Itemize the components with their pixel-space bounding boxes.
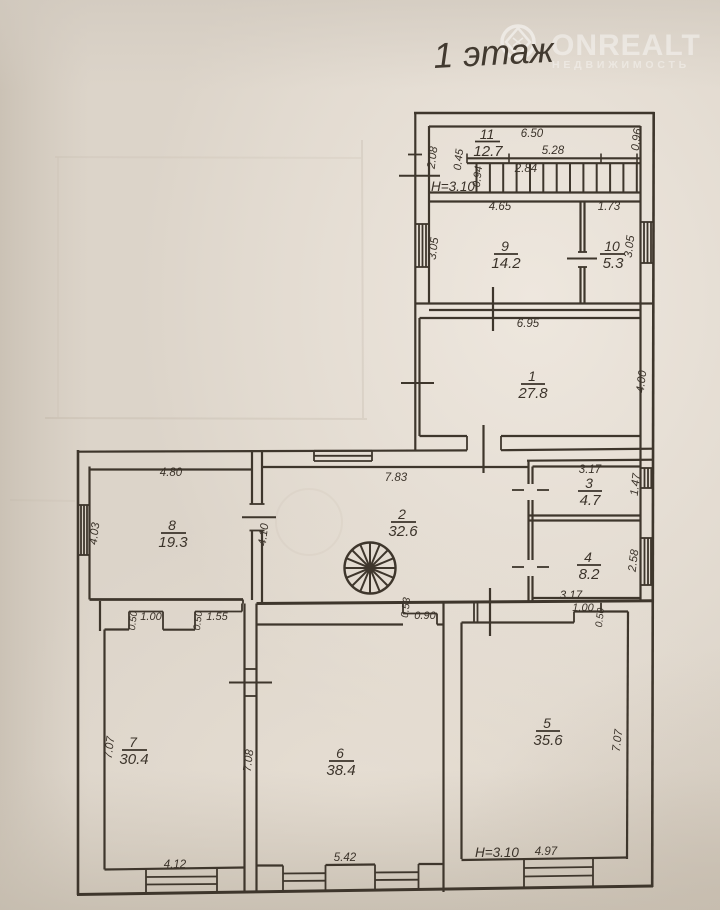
svg-text:2: 2 bbox=[397, 506, 406, 522]
svg-text:1.73: 1.73 bbox=[598, 201, 621, 213]
svg-text:6: 6 bbox=[336, 745, 344, 761]
svg-text:7: 7 bbox=[129, 734, 138, 750]
svg-text:27.8: 27.8 bbox=[517, 385, 548, 402]
svg-text:1.55: 1.55 bbox=[206, 611, 228, 623]
svg-text:4: 4 bbox=[584, 549, 592, 565]
svg-text:2.84: 2.84 bbox=[514, 163, 537, 175]
svg-text:5: 5 bbox=[543, 715, 551, 731]
svg-text:6.95: 6.95 bbox=[517, 318, 540, 330]
svg-text:1.00: 1.00 bbox=[140, 611, 162, 623]
svg-text:НЕДВИЖИМОСТЬ: НЕДВИЖИМОСТЬ bbox=[552, 59, 690, 71]
svg-text:12.7: 12.7 bbox=[473, 143, 503, 160]
svg-text:8.2: 8.2 bbox=[579, 566, 601, 583]
svg-text:3: 3 bbox=[585, 475, 593, 491]
svg-text:0.90: 0.90 bbox=[414, 610, 436, 622]
svg-text:0.53: 0.53 bbox=[399, 597, 413, 619]
svg-text:4.97: 4.97 bbox=[535, 846, 558, 858]
svg-text:5.42: 5.42 bbox=[334, 852, 357, 864]
svg-text:38.4: 38.4 bbox=[326, 762, 355, 779]
svg-text:ONREALT: ONREALT bbox=[551, 29, 701, 62]
svg-text:6.50: 6.50 bbox=[521, 128, 544, 140]
svg-text:14.2: 14.2 bbox=[491, 255, 521, 272]
svg-text:3.17: 3.17 bbox=[560, 590, 583, 602]
svg-text:H=3.10: H=3.10 bbox=[431, 179, 475, 194]
svg-text:4.80: 4.80 bbox=[160, 467, 183, 479]
svg-text:30.4: 30.4 bbox=[119, 751, 148, 768]
svg-text:4.7: 4.7 bbox=[580, 492, 602, 509]
svg-text:1.00: 1.00 bbox=[572, 602, 594, 614]
svg-text:4.12: 4.12 bbox=[164, 859, 187, 871]
svg-text:19.3: 19.3 bbox=[158, 534, 188, 551]
svg-text:4.65: 4.65 bbox=[489, 201, 512, 213]
svg-text:1 этаж: 1 этаж bbox=[432, 30, 556, 76]
svg-text:10: 10 bbox=[604, 238, 620, 254]
svg-text:1: 1 bbox=[528, 368, 536, 384]
svg-text:5.28: 5.28 bbox=[542, 145, 565, 157]
svg-text:5.3: 5.3 bbox=[603, 255, 625, 272]
svg-text:8: 8 bbox=[168, 517, 176, 533]
svg-text:32.6: 32.6 bbox=[388, 523, 418, 540]
svg-text:35.6: 35.6 bbox=[533, 732, 563, 749]
svg-text:11: 11 bbox=[480, 126, 495, 142]
svg-text:H=3.10: H=3.10 bbox=[475, 845, 519, 860]
svg-text:9: 9 bbox=[501, 238, 509, 254]
svg-text:7.83: 7.83 bbox=[385, 472, 408, 484]
